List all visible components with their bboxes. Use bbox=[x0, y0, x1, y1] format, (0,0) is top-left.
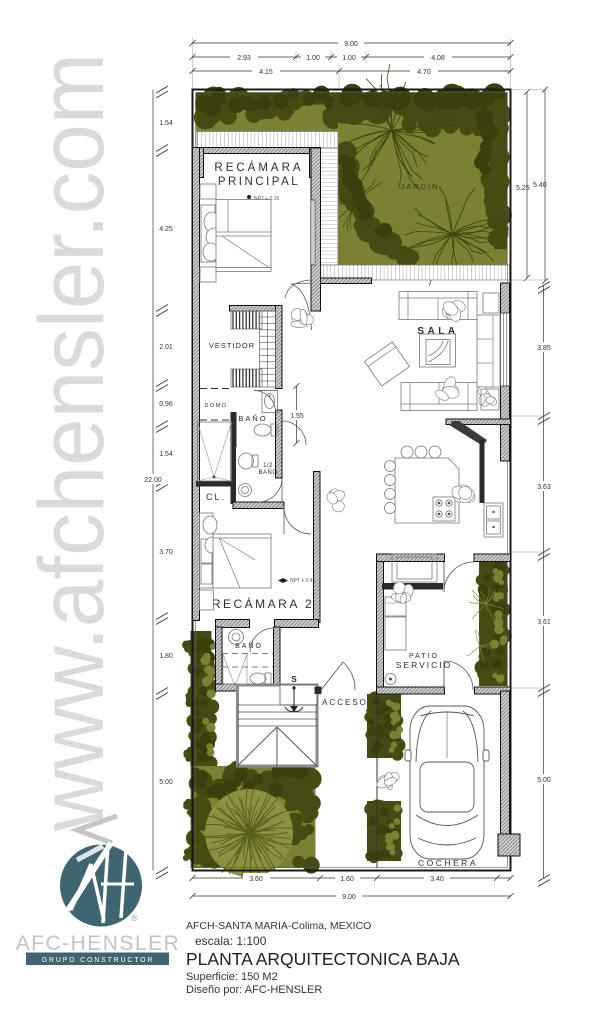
svg-text:1.00: 1.00 bbox=[342, 55, 356, 62]
svg-text:PLANTA ARQUITECTONICA BAJA: PLANTA ARQUITECTONICA BAJA bbox=[186, 949, 460, 969]
svg-text:®: ® bbox=[131, 913, 138, 923]
svg-text:BAÑO: BAÑO bbox=[238, 414, 267, 423]
svg-text:1.54: 1.54 bbox=[159, 120, 173, 127]
svg-text:AFCH-SANTA MARIA-Colima, MEXI: AFCH-SANTA MARIA-Colima, MEXICO bbox=[186, 920, 371, 932]
svg-text:COCHERA: COCHERA bbox=[418, 858, 478, 868]
svg-text:3.85: 3.85 bbox=[537, 345, 551, 352]
svg-text:4.25: 4.25 bbox=[159, 226, 173, 233]
svg-text:1.80: 1.80 bbox=[159, 653, 173, 660]
svg-text:AFC-HENSLER: AFC-HENSLER bbox=[16, 932, 181, 955]
svg-text:BAÑO: BAÑO bbox=[258, 469, 277, 476]
svg-text:5.00: 5.00 bbox=[537, 777, 551, 784]
svg-text:2.01: 2.01 bbox=[159, 344, 173, 351]
svg-text:3.40: 3.40 bbox=[430, 876, 444, 883]
svg-text:5.00: 5.00 bbox=[159, 779, 173, 786]
svg-text:Diseño por: AFC-HENSLER: Diseño por: AFC-HENSLER bbox=[186, 984, 322, 996]
svg-text:SERVICIO: SERVICIO bbox=[396, 660, 452, 670]
svg-text:DOMO: DOMO bbox=[204, 403, 227, 409]
svg-text:3.61: 3.61 bbox=[537, 619, 551, 626]
svg-text:1.60: 1.60 bbox=[340, 876, 354, 883]
svg-text:PRINCIPAL: PRINCIPAL bbox=[218, 176, 300, 188]
svg-text:9.00: 9.00 bbox=[342, 894, 356, 901]
svg-text:VESTIDOR: VESTIDOR bbox=[209, 341, 255, 350]
svg-text:1.55: 1.55 bbox=[290, 413, 304, 420]
svg-text:RECÁMARA: RECÁMARA bbox=[214, 161, 303, 174]
svg-text:BAÑO: BAÑO bbox=[235, 641, 263, 650]
svg-text:Superficie: 150 M2: Superficie: 150 M2 bbox=[186, 971, 278, 983]
svg-text:JARDÍN: JARDÍN bbox=[400, 182, 439, 191]
svg-text:3.63: 3.63 bbox=[537, 484, 551, 491]
svg-text:CL.: CL. bbox=[206, 492, 226, 502]
svg-text:4.15: 4.15 bbox=[259, 69, 273, 76]
svg-text:GRUPO CONSTRUCTOR: GRUPO CONSTRUCTOR bbox=[42, 957, 155, 964]
svg-text:RECÁMARA 2: RECÁMARA 2 bbox=[212, 596, 314, 611]
svg-text:5.40: 5.40 bbox=[533, 182, 547, 189]
svg-text:4.70: 4.70 bbox=[417, 69, 431, 76]
svg-text:PATIO: PATIO bbox=[409, 653, 439, 660]
svg-text:1.54: 1.54 bbox=[159, 451, 173, 458]
svg-text:3.60: 3.60 bbox=[249, 876, 263, 883]
svg-text:ACCESO: ACCESO bbox=[322, 698, 368, 707]
svg-text:9.00: 9.00 bbox=[344, 41, 358, 48]
svg-text:2.93: 2.93 bbox=[237, 55, 251, 62]
svg-text:escala: 1:100: escala: 1:100 bbox=[195, 934, 267, 948]
svg-text:NPT + 0.45: NPT + 0.45 bbox=[290, 578, 316, 584]
svg-text:SALA: SALA bbox=[417, 326, 458, 337]
svg-text:S: S bbox=[291, 675, 297, 684]
svg-text:5.25: 5.25 bbox=[516, 185, 530, 192]
svg-text:www.afchensler.com: www.afchensler.com bbox=[21, 53, 123, 832]
svg-text:0.96: 0.96 bbox=[159, 401, 173, 408]
svg-text:3.70: 3.70 bbox=[159, 549, 173, 556]
svg-text:4.08: 4.08 bbox=[431, 55, 445, 62]
svg-text:22.00: 22.00 bbox=[144, 477, 162, 484]
svg-text:1/2: 1/2 bbox=[263, 463, 273, 469]
svg-text:1.00: 1.00 bbox=[306, 55, 320, 62]
